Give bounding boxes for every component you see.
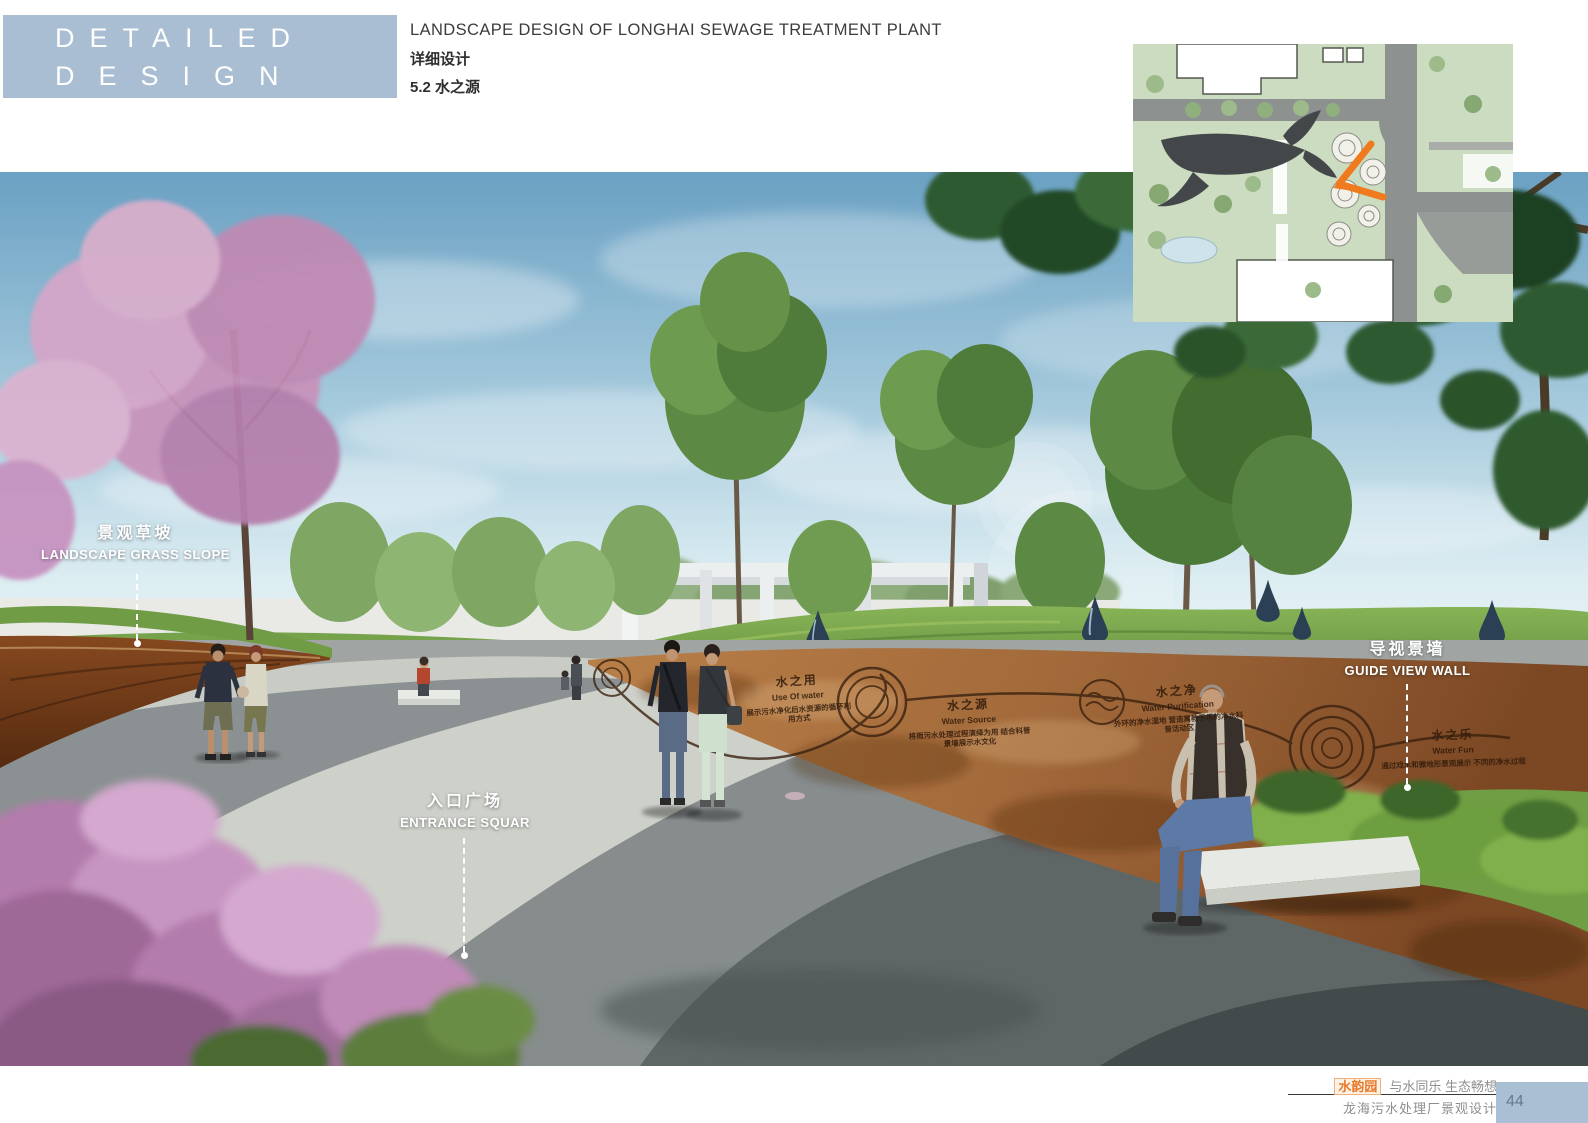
project-title-cn: 详细设计 [410, 48, 942, 69]
footer-project-name: 龙海污水处理厂景观设计 [1343, 1098, 1497, 1117]
leader-line-entrance-square [463, 838, 465, 952]
wall-inscription-water-fun: 水之乐 Water Fun 通过戏水和微地形景观展示 不同的净水过程 [1377, 725, 1528, 771]
annotation-entrance-square: 入口广场 ENTRANCE SQUAR [355, 787, 575, 830]
footer-tagline: 与水同乐 生态畅想 [1389, 1079, 1497, 1094]
site-plan-pond [1161, 237, 1217, 263]
footer-tagline-row: 水韵园与水同乐 生态畅想 [1334, 1076, 1497, 1095]
page-number: 44 [1506, 1093, 1524, 1111]
page-number-box: 44 [1496, 1082, 1588, 1123]
project-title-en: LANDSCAPE DESIGN OF LONGHAI SEWAGE TREAT… [410, 21, 942, 40]
wall-inscription-use-of-water: 水之用 Use Of water 展示污水净化后水资源的循环利用方式 [740, 670, 855, 728]
site-plan-inset [1133, 44, 1513, 322]
series-title-box: DETAILED DESIGN [3, 15, 397, 98]
series-title-line1: DETAILED [55, 23, 305, 54]
leader-line-guide-view-wall [1406, 684, 1408, 784]
wall-inscription-water-source: 水之源 Water Source 将雨污水处理过程演绎为用 结合科普景墙展示水文… [904, 695, 1034, 752]
presentation-slide: 水之用 Use Of water 展示污水净化后水资源的循环利用方式 水之源 W… [0, 0, 1588, 1123]
footer-brand: 水韵园 [1334, 1078, 1381, 1095]
wall-inscription-water-purification: 水之净 Water Purification 外环的净水湿地 营造寓教于乐的净水… [1110, 679, 1245, 738]
page-title: LANDSCAPE DESIGN OF LONGHAI SEWAGE TREAT… [410, 21, 942, 97]
series-title-line2: DESIGN [55, 61, 303, 92]
section-title: 5.2 水之源 [410, 76, 942, 97]
leader-line-grass-slope [136, 574, 138, 640]
annotation-landscape-grass-slope: 景观草坡 LANDSCAPE GRASS SLOPE [28, 519, 243, 562]
annotation-guide-view-wall: 导视景墙 GUIDE VIEW WALL [1295, 635, 1520, 678]
